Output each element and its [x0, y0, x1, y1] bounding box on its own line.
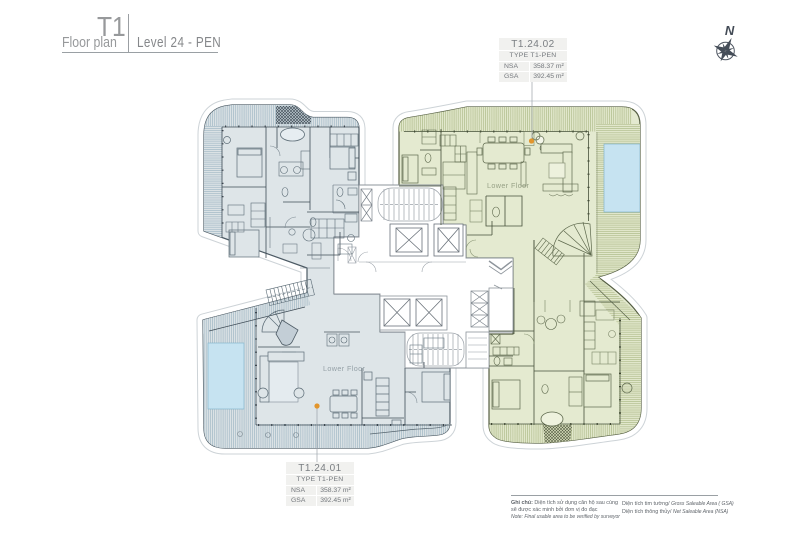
svg-text:N: N	[725, 23, 735, 38]
svg-text:Lower Floor: Lower Floor	[487, 181, 530, 190]
svg-text:Lower Floor: Lower Floor	[323, 364, 366, 373]
